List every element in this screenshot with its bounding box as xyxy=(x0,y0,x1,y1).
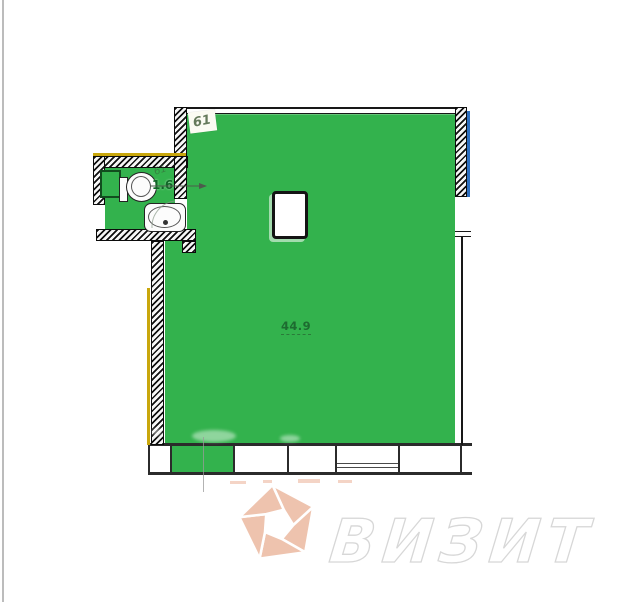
balcony-divider xyxy=(170,445,172,472)
paint-smudge xyxy=(152,428,162,436)
wall-stub-below-bathroom xyxy=(182,241,196,253)
page-edge-line xyxy=(2,0,4,602)
vent-column xyxy=(272,191,308,239)
balcony-divider xyxy=(460,445,462,472)
area-label-main: 44.9 xyxy=(281,320,311,335)
paint-smudge xyxy=(192,430,236,442)
balcony-divider xyxy=(398,445,400,472)
balcony-top-line xyxy=(148,443,472,446)
watermark-speckle xyxy=(338,480,352,483)
balcony-window-line xyxy=(337,467,398,468)
balcony-window-line xyxy=(337,463,398,464)
balcony-divider xyxy=(287,445,289,472)
floorplan-canvas: 61 44.9 1.6 61 ВИЗИТ xyxy=(0,0,635,602)
duct-box xyxy=(100,170,121,198)
paint-smudge xyxy=(280,435,300,442)
wall-right-lower xyxy=(461,237,463,445)
insulation-line-top xyxy=(93,153,186,156)
wall-top xyxy=(182,107,460,114)
area-label-bathroom: 1.6 xyxy=(152,179,173,191)
toilet-icon xyxy=(131,176,151,197)
wall-bathroom-right xyxy=(174,156,187,199)
wall-right-upper xyxy=(455,107,467,197)
exterior-blue-line xyxy=(467,111,470,197)
room-main xyxy=(165,113,455,443)
balcony-bottom-line xyxy=(148,472,472,475)
balcony-divider xyxy=(148,445,150,472)
unit-number-text: 61 xyxy=(192,112,213,130)
wall-left-main xyxy=(151,241,164,445)
vizit-pentagon-logo-icon xyxy=(235,483,321,565)
insulation-line-left xyxy=(147,288,150,445)
watermark-brand-text: ВИЗИТ xyxy=(327,512,598,572)
balcony-cell-green xyxy=(171,445,233,472)
sink-drain-dot xyxy=(163,220,168,225)
balcony-divider xyxy=(233,445,235,472)
stray-mark-line xyxy=(203,437,204,492)
window-sill-right xyxy=(455,231,471,237)
unit-number-label: 61 xyxy=(188,109,217,133)
